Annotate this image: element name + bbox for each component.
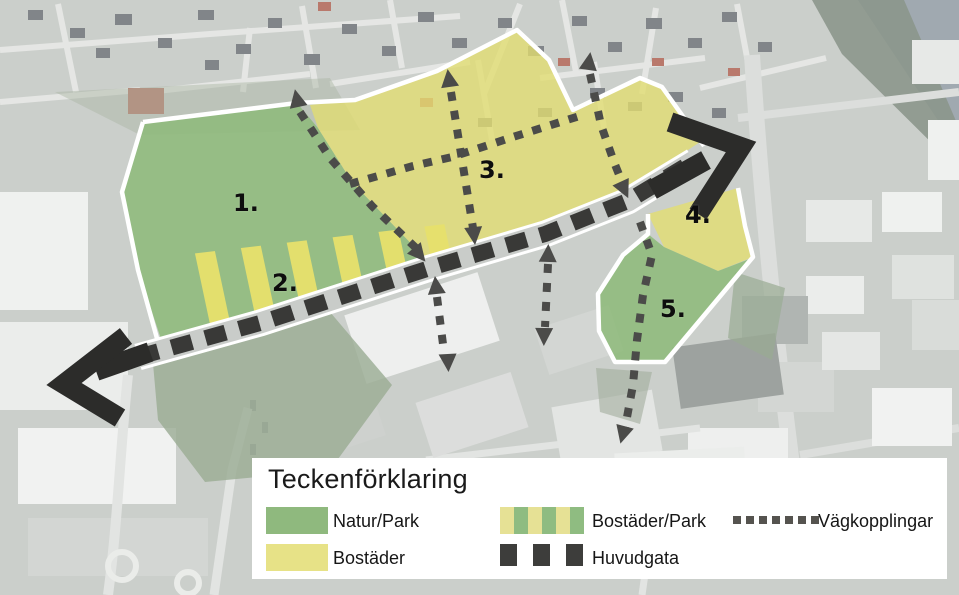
legend-title: Teckenförklaring: [268, 464, 468, 495]
legend: Teckenförklaring Natur/Park Bostäder Bos…: [252, 458, 947, 579]
bostader-label: Bostäder: [333, 548, 405, 569]
zone-1-label: 1.: [233, 189, 277, 217]
huvudgata-label: Huvudgata: [592, 548, 679, 569]
bostader-swatch: [266, 544, 328, 571]
zone-5-label: 5.: [660, 295, 704, 323]
vagkopplingar-label: Vägkopplingar: [818, 511, 933, 532]
zone-3-label: 3.: [479, 156, 523, 184]
natur-park-swatch: [266, 507, 328, 534]
bostader-park-swatch: [500, 507, 584, 534]
huvudgata-swatch: [500, 544, 584, 566]
planning-map: 1. 2. 3. 4. 5. Teckenförklaring Natur/Pa…: [0, 0, 959, 595]
natur-park-label: Natur/Park: [333, 511, 419, 532]
zone-4-label: 4.: [685, 201, 729, 229]
zone-2-label: 2.: [272, 269, 316, 297]
vagkopplingar-swatch: [733, 516, 823, 524]
bostader-park-label: Bostäder/Park: [592, 511, 706, 532]
